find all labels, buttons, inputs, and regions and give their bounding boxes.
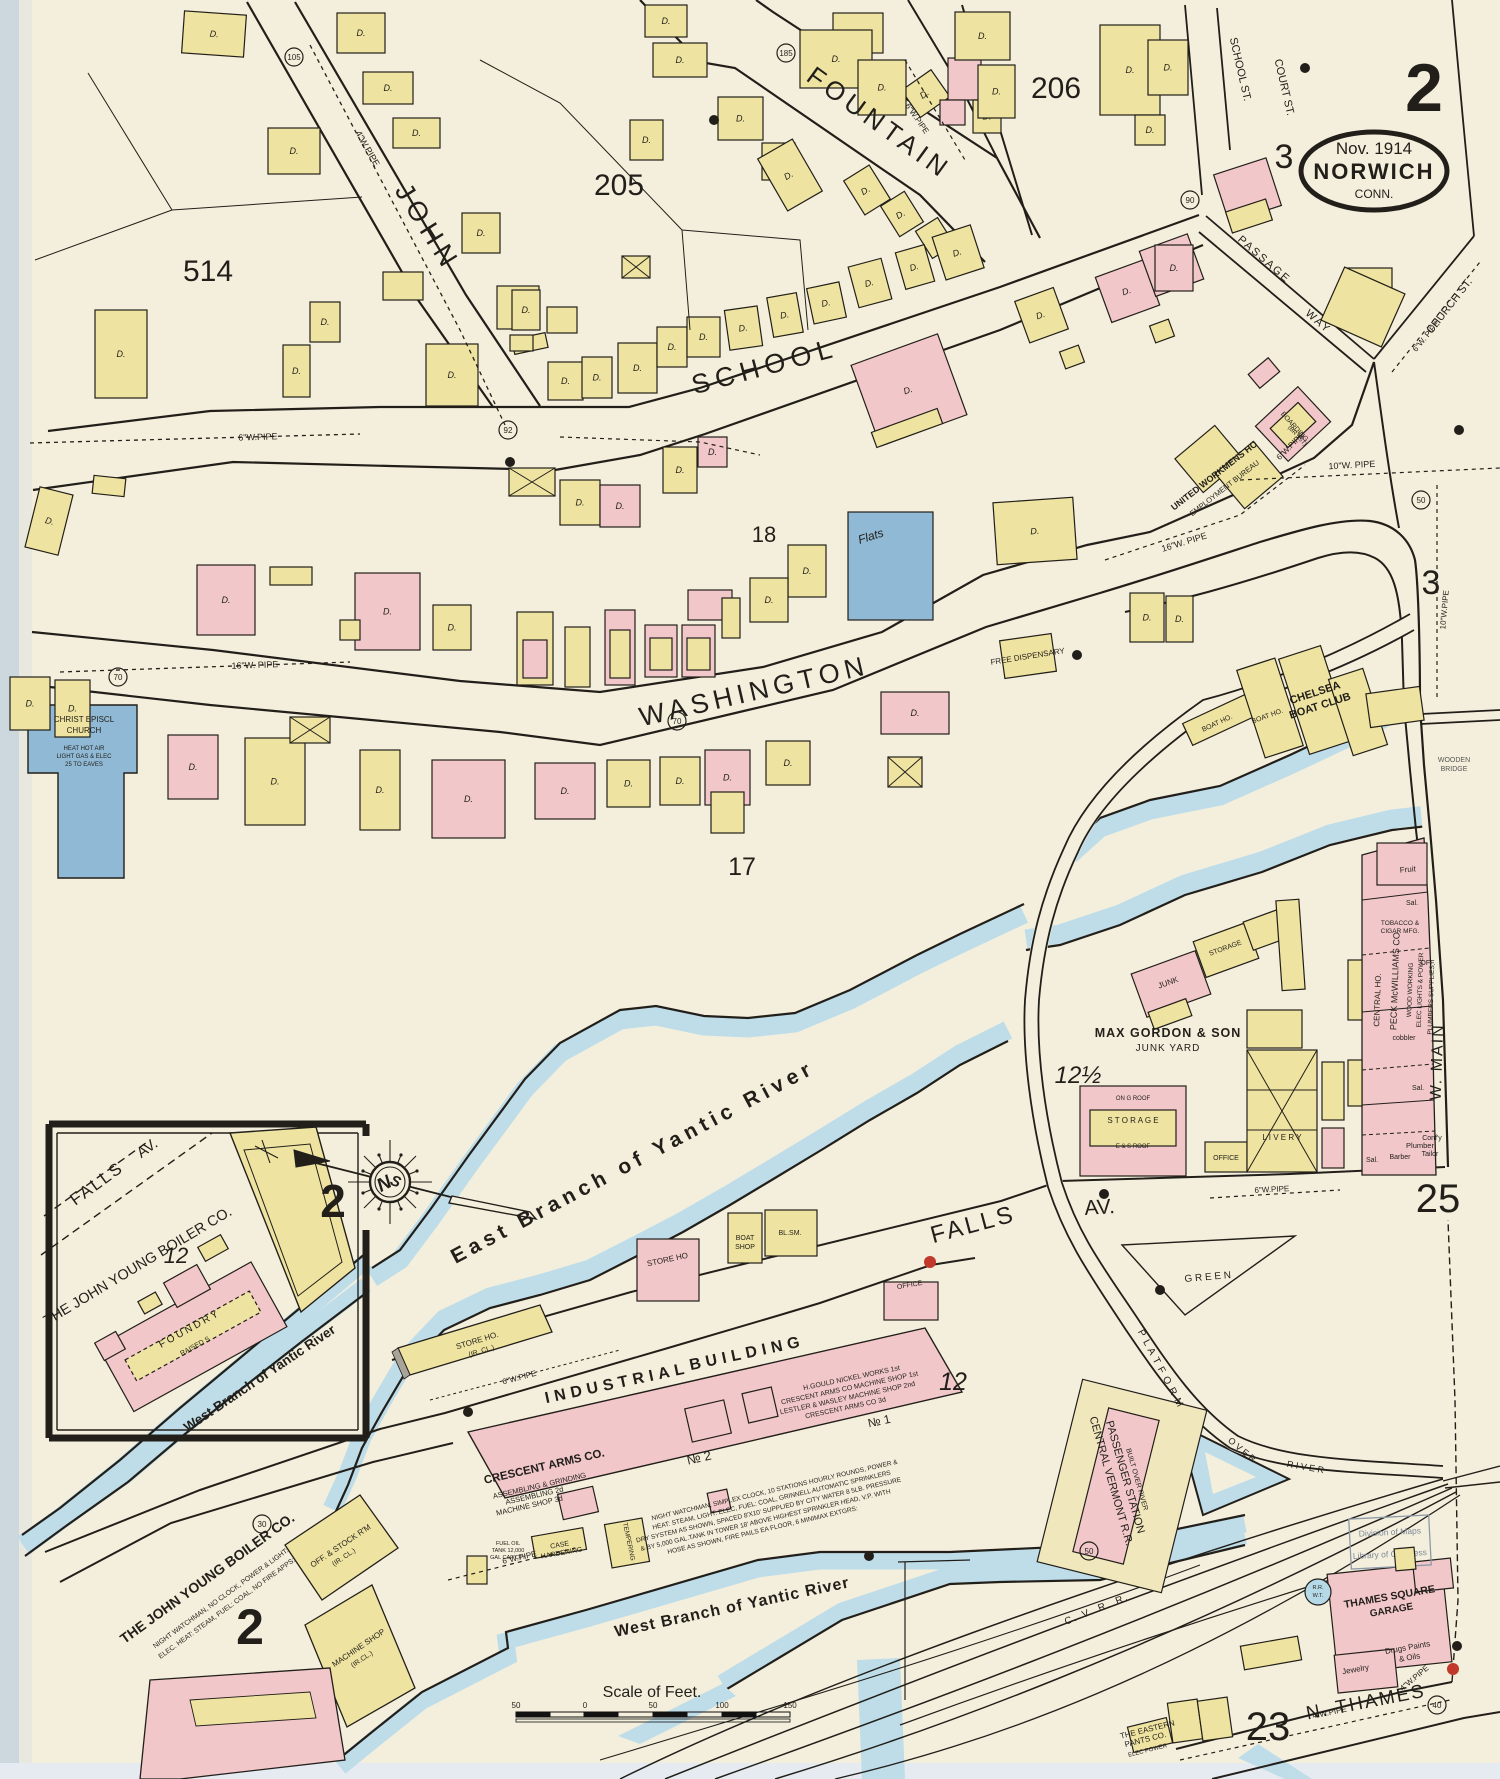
svg-text:Barber: Barber bbox=[1389, 1154, 1411, 1161]
svg-text:Scale of Feet.: Scale of Feet. bbox=[603, 1684, 702, 1701]
svg-text:514: 514 bbox=[183, 255, 233, 288]
svg-text:FUEL OIL: FUEL OIL bbox=[496, 1541, 520, 1547]
svg-text:JUNK YARD: JUNK YARD bbox=[1136, 1043, 1201, 1054]
svg-text:Nov. 1914: Nov. 1914 bbox=[1336, 139, 1412, 158]
svg-text:D.: D. bbox=[662, 16, 671, 26]
svg-text:OFF.: OFF. bbox=[1420, 960, 1435, 967]
svg-text:LIGHT GAS & ELEC: LIGHT GAS & ELEC bbox=[57, 754, 113, 760]
svg-text:CHURCH: CHURCH bbox=[67, 726, 102, 735]
svg-text:D.: D. bbox=[616, 501, 625, 511]
svg-text:206: 206 bbox=[1031, 72, 1081, 105]
svg-text:18: 18 bbox=[752, 522, 776, 547]
svg-text:Sal.: Sal. bbox=[1406, 900, 1418, 907]
svg-text:D.: D. bbox=[1170, 263, 1179, 273]
svg-text:D.: D. bbox=[448, 623, 457, 633]
svg-text:D.: D. bbox=[633, 363, 642, 373]
svg-text:92: 92 bbox=[504, 426, 513, 435]
svg-text:D.: D. bbox=[384, 83, 393, 93]
svg-text:D.: D. bbox=[911, 708, 920, 718]
svg-text:12: 12 bbox=[939, 1368, 967, 1396]
svg-text:D.: D. bbox=[992, 87, 1001, 97]
svg-text:2: 2 bbox=[236, 1599, 264, 1655]
svg-text:3: 3 bbox=[1275, 138, 1294, 176]
svg-text:D.: D. bbox=[189, 762, 198, 772]
svg-text:D.: D. bbox=[477, 228, 486, 238]
svg-text:D.: D. bbox=[464, 794, 473, 804]
svg-text:CONN.: CONN. bbox=[1355, 187, 1394, 201]
svg-text:2: 2 bbox=[320, 1175, 346, 1227]
svg-text:CENTRAL HO.: CENTRAL HO. bbox=[1372, 973, 1383, 1027]
svg-text:E & S ROOF: E & S ROOF bbox=[1116, 1144, 1151, 1150]
svg-text:Plumber: Plumber bbox=[1406, 1141, 1434, 1150]
svg-text:D.: D. bbox=[668, 342, 677, 352]
svg-text:12½: 12½ bbox=[1055, 1062, 1102, 1089]
svg-text:NORWICH: NORWICH bbox=[1313, 159, 1434, 184]
svg-text:0: 0 bbox=[583, 1701, 588, 1710]
svg-text:D.: D. bbox=[292, 366, 301, 376]
svg-text:S T O R A G E: S T O R A G E bbox=[1107, 1116, 1158, 1125]
svg-text:D.: D. bbox=[1126, 65, 1135, 75]
svg-text:D.: D. bbox=[68, 704, 77, 714]
svg-text:6"W.PIPE: 6"W.PIPE bbox=[238, 431, 278, 442]
svg-text:D.: D. bbox=[738, 322, 748, 333]
svg-text:BL.SM.: BL.SM. bbox=[779, 1230, 802, 1237]
svg-text:CHRIST EPISCL: CHRIST EPISCL bbox=[54, 715, 115, 724]
svg-text:HEAT HOT AIR: HEAT HOT AIR bbox=[63, 746, 105, 752]
svg-text:TOBACCO &: TOBACCO & bbox=[1381, 920, 1420, 927]
svg-text:70: 70 bbox=[114, 673, 123, 682]
svg-text:Tailor: Tailor bbox=[1422, 1151, 1439, 1158]
svg-text:D.: D. bbox=[676, 55, 685, 65]
svg-text:D.: D. bbox=[561, 786, 570, 796]
svg-text:D.: D. bbox=[561, 376, 570, 386]
svg-text:D.: D. bbox=[878, 83, 887, 93]
svg-text:D.: D. bbox=[321, 317, 330, 327]
svg-text:40: 40 bbox=[1433, 1701, 1442, 1710]
svg-text:D.: D. bbox=[676, 776, 685, 786]
svg-text:D.: D. bbox=[642, 135, 651, 145]
svg-text:2: 2 bbox=[1405, 50, 1443, 126]
svg-text:ON G ROOF: ON G ROOF bbox=[1116, 1096, 1151, 1102]
svg-text:16"W. PIPE: 16"W. PIPE bbox=[231, 659, 278, 671]
svg-text:D.: D. bbox=[412, 128, 421, 138]
svg-text:D.: D. bbox=[290, 146, 299, 156]
svg-text:D.: D. bbox=[803, 566, 812, 576]
svg-text:100: 100 bbox=[715, 1701, 729, 1710]
svg-text:AV.: AV. bbox=[1084, 1195, 1116, 1220]
svg-text:Sal.: Sal. bbox=[1366, 1157, 1378, 1164]
svg-text:D.: D. bbox=[522, 305, 531, 315]
svg-text:D.: D. bbox=[723, 773, 732, 783]
svg-text:Fruit: Fruit bbox=[1399, 864, 1416, 874]
svg-text:D.: D. bbox=[1164, 63, 1173, 73]
svg-text:50: 50 bbox=[1417, 496, 1426, 505]
svg-text:25 TO EAVES: 25 TO EAVES bbox=[65, 762, 103, 768]
svg-text:D.: D. bbox=[1030, 526, 1040, 537]
svg-text:Conf'y: Conf'y bbox=[1422, 1135, 1442, 1142]
svg-text:OFFICE: OFFICE bbox=[1213, 1155, 1239, 1162]
svg-text:D.: D. bbox=[376, 785, 385, 795]
svg-text:D.: D. bbox=[736, 114, 745, 124]
svg-text:D.: D. bbox=[383, 607, 392, 617]
svg-text:70: 70 bbox=[673, 717, 682, 726]
svg-text:12: 12 bbox=[164, 1243, 188, 1268]
svg-text:D.: D. bbox=[765, 595, 774, 605]
svg-text:D.: D. bbox=[222, 595, 231, 605]
svg-text:cobbler: cobbler bbox=[1393, 1035, 1417, 1042]
svg-text:D.: D. bbox=[117, 349, 126, 359]
svg-text:D.: D. bbox=[209, 29, 219, 40]
svg-text:CIGAR MFG.: CIGAR MFG. bbox=[1381, 928, 1420, 935]
svg-text:WOODEN: WOODEN bbox=[1438, 757, 1470, 764]
svg-text:D.: D. bbox=[699, 332, 708, 342]
svg-text:50: 50 bbox=[649, 1701, 658, 1710]
svg-text:Sal.: Sal. bbox=[1412, 1085, 1424, 1092]
svg-text:D.: D. bbox=[1175, 614, 1184, 624]
svg-text:25: 25 bbox=[1416, 1177, 1461, 1221]
svg-text:D.: D. bbox=[26, 699, 35, 709]
svg-text:30: 30 bbox=[258, 1520, 267, 1529]
svg-text:D.: D. bbox=[978, 31, 987, 41]
svg-text:3: 3 bbox=[1422, 564, 1441, 602]
svg-text:D.: D. bbox=[832, 54, 841, 64]
svg-text:D.: D. bbox=[593, 373, 602, 383]
svg-text:SHOP: SHOP bbox=[735, 1244, 755, 1251]
svg-text:205: 205 bbox=[594, 169, 644, 202]
svg-text:D.: D. bbox=[784, 758, 793, 768]
svg-text:185: 185 bbox=[779, 49, 793, 58]
svg-text:D.: D. bbox=[271, 777, 280, 787]
svg-text:6"W.PIPE: 6"W.PIPE bbox=[1254, 1184, 1289, 1195]
svg-text:105: 105 bbox=[287, 53, 301, 62]
svg-text:D.: D. bbox=[708, 447, 717, 457]
svg-text:D.: D. bbox=[676, 465, 685, 475]
svg-text:MAX GORDON & SON: MAX GORDON & SON bbox=[1095, 1026, 1242, 1040]
svg-text:150: 150 bbox=[783, 1701, 797, 1710]
svg-text:BOAT: BOAT bbox=[736, 1235, 755, 1242]
svg-text:D.: D. bbox=[1143, 613, 1152, 623]
svg-text:D.: D. bbox=[576, 498, 585, 508]
svg-text:50: 50 bbox=[512, 1701, 521, 1710]
svg-text:50: 50 bbox=[1085, 1547, 1094, 1556]
svg-text:D.: D. bbox=[448, 370, 457, 380]
svg-text:W.T.: W.T. bbox=[1313, 1593, 1324, 1599]
svg-text:90: 90 bbox=[1186, 196, 1195, 205]
svg-text:R.R.: R.R. bbox=[1313, 1585, 1324, 1591]
svg-text:D.: D. bbox=[1146, 125, 1155, 135]
svg-text:D.: D. bbox=[624, 779, 633, 789]
svg-text:D.: D. bbox=[357, 28, 366, 38]
svg-text:BRIDGE: BRIDGE bbox=[1441, 766, 1468, 773]
svg-text:D.: D. bbox=[779, 309, 790, 320]
svg-text:23: 23 bbox=[1246, 1705, 1291, 1749]
svg-text:17: 17 bbox=[728, 853, 756, 881]
svg-text:L I V E R Y: L I V E R Y bbox=[1262, 1133, 1302, 1142]
